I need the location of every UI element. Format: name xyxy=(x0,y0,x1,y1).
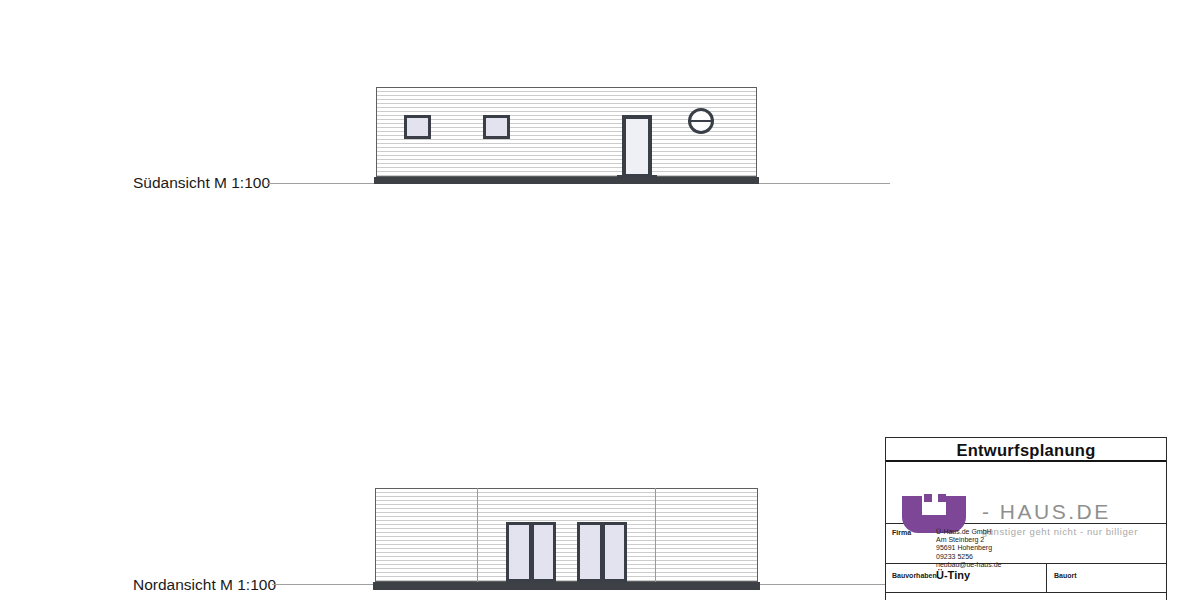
north-french-door-1 xyxy=(506,522,556,582)
door-pane xyxy=(605,525,625,579)
south-window-2 xyxy=(483,115,510,139)
south-elevation-label: Südansicht M 1:100 xyxy=(133,174,270,192)
title-block-empty-row xyxy=(886,593,1166,600)
round-window-midline xyxy=(688,120,714,122)
bauort-label: Bauort xyxy=(1054,572,1077,579)
bauvorhaben-value: Ü-Tiny xyxy=(936,569,970,581)
project-row-divider xyxy=(1046,564,1047,592)
firma-line-4: 09233 5256 xyxy=(936,553,1002,561)
brand-name: - HAUS.DE xyxy=(982,500,1111,524)
title-block-project-row: Bauvorhaben Ü-Tiny Bauort xyxy=(886,564,1166,593)
title-block-header: Entwurfsplanung xyxy=(886,438,1166,462)
door-pane xyxy=(580,525,600,579)
plan-title: Entwurfsplanung xyxy=(886,441,1166,460)
firma-line-1: Ü-Haus.de GmbH xyxy=(936,528,1002,536)
round-window xyxy=(688,108,714,134)
firma-line-2: Am Steinberg 2 xyxy=(936,536,1002,544)
north-plinth xyxy=(373,582,760,590)
firma-line-3: 95691 Hohenberg xyxy=(936,544,1002,552)
north-facade-joint-2 xyxy=(655,488,656,582)
drawing-sheet: Südansicht M 1:100 Nordansicht M 1:100 E… xyxy=(0,0,1200,600)
door-pane xyxy=(509,525,529,579)
title-block: Entwurfsplanung - HAUS.DE günstiger geht… xyxy=(885,437,1167,600)
title-block-logo-row: - HAUS.DE günstiger geht nicht - nur bil… xyxy=(886,462,1166,524)
firma-label: Firma xyxy=(892,529,911,536)
logo-umlaut-dot-2 xyxy=(938,494,946,502)
title-block-firma-row: Firma Ü-Haus.de GmbH Am Steinberg 2 9569… xyxy=(886,524,1166,564)
south-door xyxy=(622,115,652,178)
door-pane xyxy=(534,525,554,579)
north-elevation-label: Nordansicht M 1:100 xyxy=(133,576,276,594)
south-plinth xyxy=(374,177,759,184)
north-facade-joint-1 xyxy=(477,488,478,582)
north-french-door-2 xyxy=(577,522,627,582)
firma-address: Ü-Haus.de GmbH Am Steinberg 2 95691 Hohe… xyxy=(936,528,1002,569)
south-window-1 xyxy=(404,115,431,139)
logo-umlaut-dot-1 xyxy=(924,494,932,502)
bauvorhaben-label: Bauvorhaben xyxy=(892,572,937,579)
north-facade xyxy=(375,488,758,582)
